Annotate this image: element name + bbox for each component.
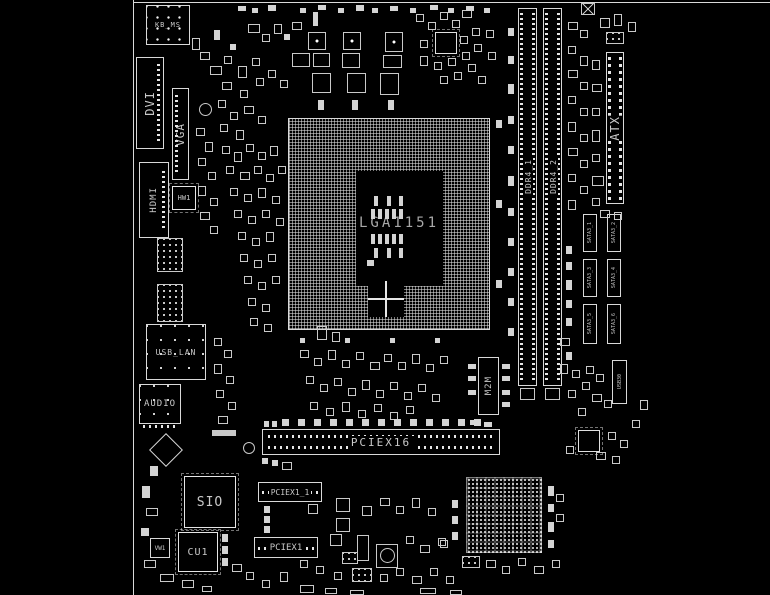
component-outline <box>252 238 260 246</box>
solder-pad <box>330 419 337 426</box>
component-outline <box>426 364 434 372</box>
component-outline <box>254 260 262 268</box>
component-outline <box>328 350 336 360</box>
component-outline <box>578 408 586 416</box>
solder-pad <box>264 516 270 523</box>
component-outline <box>580 134 588 142</box>
component-outline <box>248 298 256 306</box>
component-outline <box>280 572 288 582</box>
component-outline <box>220 124 228 132</box>
component-outline <box>640 400 648 410</box>
component-outline <box>545 388 560 400</box>
solder-pad <box>508 146 514 154</box>
component-outline <box>446 576 454 584</box>
component-outline <box>210 66 222 75</box>
component-outline <box>592 130 600 142</box>
dimm2-label: DDR4_2 <box>549 157 558 196</box>
component-outline <box>200 52 210 60</box>
component-outline <box>252 58 260 66</box>
component-outline <box>198 158 206 166</box>
component-outline <box>568 122 576 132</box>
component-outline <box>280 80 288 88</box>
component-outline <box>240 172 250 180</box>
component-outline <box>258 188 266 198</box>
sata-label-2: SATA3_2 <box>611 222 617 243</box>
audio-codec-chip[interactable] <box>149 433 183 467</box>
vw1-chip[interactable]: VW1 <box>150 538 170 558</box>
component-outline <box>518 558 526 566</box>
component-outline <box>434 62 442 70</box>
component-outline <box>146 508 158 516</box>
component-outline <box>420 40 428 48</box>
solder-pad <box>284 34 290 40</box>
component-outline <box>520 388 535 400</box>
dimm1-label: DDR4_1 <box>524 157 533 196</box>
component-outline <box>383 55 402 68</box>
component-outline <box>370 362 380 370</box>
component-outline <box>182 580 194 588</box>
component-outline <box>420 588 436 594</box>
solder-pad <box>468 390 476 395</box>
solder-pad <box>378 234 382 244</box>
component-outline <box>238 232 246 240</box>
component-outline <box>462 10 472 18</box>
solder-pad <box>508 56 514 64</box>
ps2-connector[interactable]: KB_MS <box>146 5 190 45</box>
pin-header <box>462 556 480 568</box>
component-outline <box>568 70 578 78</box>
mosfet <box>308 32 326 50</box>
solder-pad <box>150 466 158 476</box>
solder-pad <box>141 528 149 536</box>
component-outline <box>262 34 270 42</box>
component-outline <box>596 452 606 460</box>
component-outline <box>604 400 612 408</box>
solder-pad <box>272 460 278 466</box>
sata-connector-3[interactable]: SATA3_3 <box>583 259 597 297</box>
solder-pad <box>496 200 502 208</box>
solder-pad <box>566 318 572 326</box>
sata-label-6: SATA3_6 <box>611 313 617 334</box>
cu1-chip[interactable]: CU1 <box>178 532 218 572</box>
component-outline <box>380 498 390 506</box>
silkscreen-bar <box>212 430 236 436</box>
component-outline <box>250 318 258 326</box>
component-outline <box>592 394 602 402</box>
mosfet <box>343 32 361 50</box>
component-outline <box>336 498 350 512</box>
pciex1-1-slot[interactable]: PCIEX1_1 <box>258 482 322 502</box>
solder-pad <box>385 234 389 244</box>
usb3-header[interactable]: USB30 <box>612 360 627 404</box>
solder-pad <box>435 338 440 343</box>
component-outline <box>196 128 205 136</box>
sata-connector-5[interactable]: SATA3_5 <box>583 304 597 344</box>
qfn-chip <box>435 32 457 54</box>
component-outline <box>272 196 280 204</box>
solder-pad <box>508 238 514 246</box>
component-outline <box>440 76 448 84</box>
vga-pins <box>175 95 178 175</box>
solder-pad <box>392 234 396 244</box>
solder-pad <box>399 234 403 244</box>
component-outline <box>230 112 238 120</box>
component-outline <box>488 52 496 60</box>
sio-chip[interactable]: SIO <box>184 476 236 528</box>
component-outline <box>342 360 350 368</box>
board-top-edge <box>133 2 770 3</box>
component-outline <box>534 566 544 574</box>
solder-pad <box>484 8 490 13</box>
component-outline <box>468 64 476 72</box>
component-outline <box>160 574 174 582</box>
component-outline <box>560 364 568 374</box>
component-outline <box>582 382 590 390</box>
component-outline <box>406 406 414 414</box>
component-outline <box>404 392 412 400</box>
solder-pad <box>508 298 514 306</box>
solder-pad <box>352 100 358 110</box>
component-outline <box>266 232 274 242</box>
component-outline <box>440 356 448 364</box>
solder-pad <box>448 8 454 13</box>
solder-pad <box>230 44 236 50</box>
solder-pad <box>268 5 276 11</box>
component-outline <box>292 22 302 30</box>
dimm1-pins-right <box>532 13 535 381</box>
component-outline <box>312 73 331 93</box>
component-outline <box>620 440 628 448</box>
component-outline <box>320 384 328 392</box>
component-outline <box>420 545 430 553</box>
component-outline <box>330 534 342 546</box>
component-outline <box>568 200 576 210</box>
component-outline <box>560 338 570 346</box>
solder-pad <box>371 209 375 219</box>
component-outline <box>474 44 482 52</box>
component-outline <box>374 404 382 412</box>
solder-pad <box>508 328 514 336</box>
component-outline <box>314 358 322 366</box>
solder-pad <box>442 419 449 426</box>
solder-pad <box>394 419 401 426</box>
pciex1-2-label: PCIEX1 <box>268 543 305 553</box>
sio-label: SIO <box>197 495 223 510</box>
component-outline <box>306 376 314 384</box>
circle-component <box>199 103 212 116</box>
board-view: KB_MS DVI VGA HDMI HW1 USB_LAN AUDIO LGA… <box>0 0 770 595</box>
component-outline <box>234 152 242 162</box>
solder-pad <box>508 176 514 186</box>
component-outline <box>200 212 210 220</box>
component-outline <box>396 506 404 514</box>
component-outline <box>198 186 206 196</box>
solder-pad <box>300 8 306 13</box>
component-outline <box>317 326 327 340</box>
component-outline <box>608 432 616 440</box>
solder-pad <box>362 419 369 426</box>
solder-pad <box>508 84 514 94</box>
pin-header <box>606 32 624 44</box>
component-outline <box>416 14 424 22</box>
solder-pad <box>282 419 289 426</box>
atx-label: ATX <box>608 116 622 141</box>
component-outline <box>210 198 218 206</box>
pciex16-slot[interactable]: PCIEX16 <box>262 429 500 455</box>
component-outline <box>258 152 266 160</box>
solder-pad <box>430 5 438 10</box>
solder-pad <box>388 100 394 110</box>
component-outline <box>502 566 510 574</box>
component-outline <box>412 354 420 364</box>
pin-header <box>352 568 372 582</box>
component-outline <box>224 350 232 358</box>
component-outline <box>614 14 622 26</box>
solder-pad <box>385 209 389 219</box>
component-outline <box>270 146 278 156</box>
component-outline <box>566 446 574 454</box>
cpu-socket[interactable]: LGA1151 <box>288 118 490 330</box>
component-outline <box>313 53 330 67</box>
component-outline <box>334 572 342 580</box>
component-outline <box>462 52 470 60</box>
component-outline <box>440 12 448 20</box>
solder-pad <box>300 338 305 343</box>
component-outline <box>268 70 276 78</box>
solder-pad <box>264 421 269 427</box>
solder-pad <box>496 120 502 128</box>
component-outline <box>357 535 369 561</box>
component-outline <box>396 568 404 576</box>
dimm-slot-2[interactable]: DDR4_2 <box>543 8 562 386</box>
solder-pad <box>378 419 385 426</box>
solder-pad <box>548 486 554 496</box>
solder-pad <box>548 522 554 532</box>
component-outline <box>228 402 236 410</box>
component-outline <box>316 566 324 574</box>
component-outline <box>376 390 384 398</box>
component-outline <box>592 60 600 70</box>
solder-pad <box>496 280 502 288</box>
component-outline <box>256 78 264 86</box>
component-outline <box>208 172 216 180</box>
component-outline <box>628 22 636 32</box>
component-outline <box>258 116 266 124</box>
hdmi-label: HDMI <box>149 187 159 213</box>
component-outline <box>362 506 372 516</box>
component-outline <box>238 66 247 78</box>
solder-pad <box>252 8 258 13</box>
board-left-edge <box>133 0 134 595</box>
solder-pad <box>371 234 375 244</box>
solder-pad <box>390 6 398 11</box>
component-outline <box>450 590 462 595</box>
component-outline <box>412 498 420 508</box>
sata-connector-4[interactable]: SATA3_4 <box>607 259 621 297</box>
solder-pad <box>374 248 378 258</box>
usb-lan-connector[interactable]: USB_LAN <box>146 324 206 380</box>
solder-pad <box>452 532 458 540</box>
component-outline <box>214 364 222 374</box>
component-outline <box>418 384 426 392</box>
component-outline <box>384 354 392 362</box>
component-outline <box>486 560 496 568</box>
component-outline <box>342 402 350 412</box>
dimm2-pins-left <box>545 13 548 381</box>
circle-component <box>243 442 255 454</box>
component-outline <box>556 494 564 502</box>
qfn-chip <box>578 430 600 452</box>
solder-pad <box>387 196 391 206</box>
solder-pad <box>214 30 220 40</box>
component-outline <box>262 580 270 588</box>
component-outline <box>432 394 440 402</box>
dimm-slot-1[interactable]: DDR4_1 <box>518 8 537 386</box>
pch-chip[interactable] <box>466 477 542 553</box>
component-outline <box>230 188 238 196</box>
component-outline <box>600 210 610 218</box>
component-outline <box>240 90 248 98</box>
component-outline <box>612 456 620 464</box>
solder-pad <box>346 419 353 426</box>
solder-pad <box>222 558 228 566</box>
solder-pad <box>372 8 378 13</box>
solder-pad <box>356 5 364 11</box>
solder-pad <box>566 246 572 254</box>
component-outline <box>210 226 218 234</box>
component-outline <box>632 420 640 428</box>
component-outline <box>580 160 588 168</box>
component-outline <box>262 210 270 218</box>
component-outline <box>248 24 260 33</box>
solder-pad <box>468 364 476 369</box>
component-outline <box>272 276 280 284</box>
component-outline <box>448 58 456 66</box>
solder-pad <box>222 534 228 542</box>
ps2-label: KB_MS <box>155 21 181 29</box>
usb3-header-label: USB30 <box>617 374 623 389</box>
vga-connector[interactable]: VGA <box>172 88 189 180</box>
component-outline <box>478 76 486 84</box>
component-outline <box>234 210 242 218</box>
component-outline <box>244 194 252 202</box>
component-outline <box>390 382 398 390</box>
solder-pad <box>264 526 270 533</box>
hw1-chip[interactable]: HW1 <box>172 186 196 210</box>
component-outline <box>472 28 480 36</box>
m2m-connector[interactable]: M2M <box>478 357 499 415</box>
solder-pad <box>298 419 305 426</box>
solder-pad <box>426 419 433 426</box>
component-outline <box>205 142 213 152</box>
component-outline <box>232 564 242 572</box>
solder-pad <box>374 196 378 206</box>
solder-pad <box>399 196 403 206</box>
solder-pad <box>222 546 228 554</box>
component-outline <box>258 282 266 290</box>
sata-label-1: SATA3_1 <box>587 222 593 243</box>
mount-hole <box>581 3 595 15</box>
solder-pad <box>378 209 382 219</box>
component-outline <box>282 462 292 470</box>
component-outline <box>308 504 318 514</box>
component-outline <box>264 324 272 332</box>
component-outline <box>218 100 226 108</box>
solder-pad <box>313 12 318 26</box>
component-outline <box>430 568 438 576</box>
component-outline <box>268 254 276 262</box>
dvi-connector[interactable]: DVI <box>136 57 164 149</box>
cu1-label: CU1 <box>187 547 208 558</box>
solder-pad <box>468 376 476 381</box>
dvi-label: DVI <box>143 91 157 116</box>
solder-pad <box>452 516 458 524</box>
solder-pad <box>502 390 510 395</box>
component-outline <box>214 338 222 346</box>
component-outline <box>592 154 600 162</box>
solder-pad <box>508 268 514 276</box>
component-outline <box>310 402 318 410</box>
component-outline <box>356 352 364 360</box>
solder-pad <box>484 422 492 427</box>
component-outline <box>240 254 248 262</box>
hdmi-pins <box>162 171 165 231</box>
component-outline <box>552 560 560 568</box>
pciex16-label: PCIEX16 <box>348 436 414 449</box>
sata-connector-6[interactable]: SATA3_6 <box>607 304 621 344</box>
solder-pad <box>474 419 481 426</box>
m2m-label: M2M <box>484 376 494 395</box>
component-outline <box>440 540 448 548</box>
solder-pad <box>458 419 465 426</box>
solder-pad <box>345 338 350 343</box>
component-outline <box>226 376 234 384</box>
component-outline <box>246 572 254 580</box>
component-outline <box>380 574 388 582</box>
solder-pad <box>314 419 321 426</box>
component-outline <box>144 560 156 568</box>
sata-connector-1[interactable]: SATA3_1 <box>583 214 597 252</box>
pciex1-2-slot[interactable]: PCIEX1 <box>254 537 318 558</box>
component-outline <box>568 390 576 398</box>
component-outline <box>262 304 270 312</box>
component-outline <box>556 514 564 522</box>
component-outline <box>428 508 436 516</box>
solder-pad <box>508 28 514 36</box>
component-outline <box>226 166 234 174</box>
audio-connector[interactable]: AUDIO <box>139 384 181 424</box>
component-outline <box>348 388 356 396</box>
solder-pad <box>548 504 554 512</box>
solder-pad <box>548 540 554 548</box>
component-outline <box>332 332 340 342</box>
component-outline <box>244 276 252 284</box>
hw1-label: HW1 <box>178 194 191 202</box>
component-outline <box>454 72 462 80</box>
component-outline <box>254 166 262 174</box>
component-outline <box>300 585 314 593</box>
component-outline <box>246 144 254 152</box>
component-outline <box>362 380 370 390</box>
component-outline <box>568 148 578 156</box>
atx-power-connector[interactable]: ATX <box>606 52 624 204</box>
dimm1-pins-left <box>520 13 523 381</box>
usb-lan-label: USB_LAN <box>156 348 197 357</box>
hdmi-connector[interactable]: HDMI <box>139 162 169 238</box>
vw1-label: VW1 <box>155 545 166 552</box>
pin-header <box>342 552 358 564</box>
mosfet <box>385 32 403 52</box>
